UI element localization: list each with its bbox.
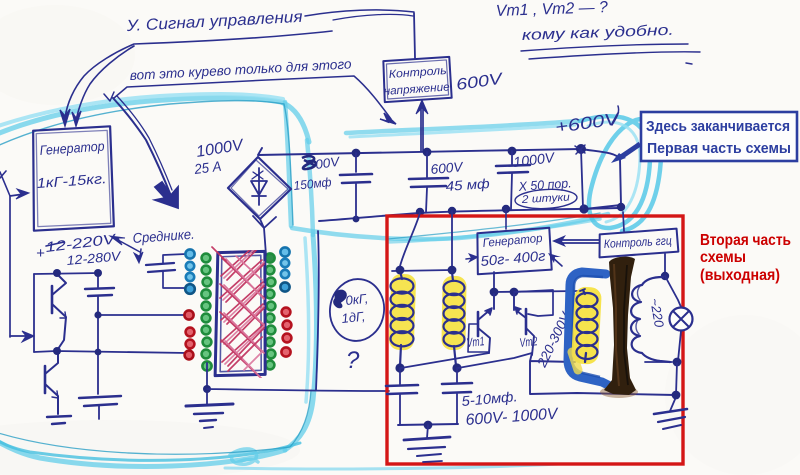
svg-text:2 штуки: 2 штуки <box>520 192 570 207</box>
svg-text:1дГ,: 1дГ, <box>341 309 366 326</box>
svg-text:25 А: 25 А <box>192 158 222 177</box>
svg-text:600V: 600V <box>430 159 465 177</box>
svg-text:Первая часть схемы: Первая часть схемы <box>647 140 791 157</box>
svg-text:схемы: схемы <box>700 249 746 266</box>
svg-text:Здесь заканчивается: Здесь заканчивается <box>646 118 790 135</box>
svg-text:Vт1: Vт1 <box>466 334 485 350</box>
svg-text:+: + <box>36 245 45 262</box>
svg-text:0кГ,: 0кГ, <box>345 291 369 308</box>
svg-text:Вторая часть: Вторая часть <box>700 232 791 249</box>
svg-text:Vт2: Vт2 <box>519 334 538 350</box>
svg-text:(выходная): (выходная) <box>700 267 780 284</box>
svg-text:?: ? <box>346 347 360 374</box>
svg-text:45 мф: 45 мф <box>445 176 490 194</box>
